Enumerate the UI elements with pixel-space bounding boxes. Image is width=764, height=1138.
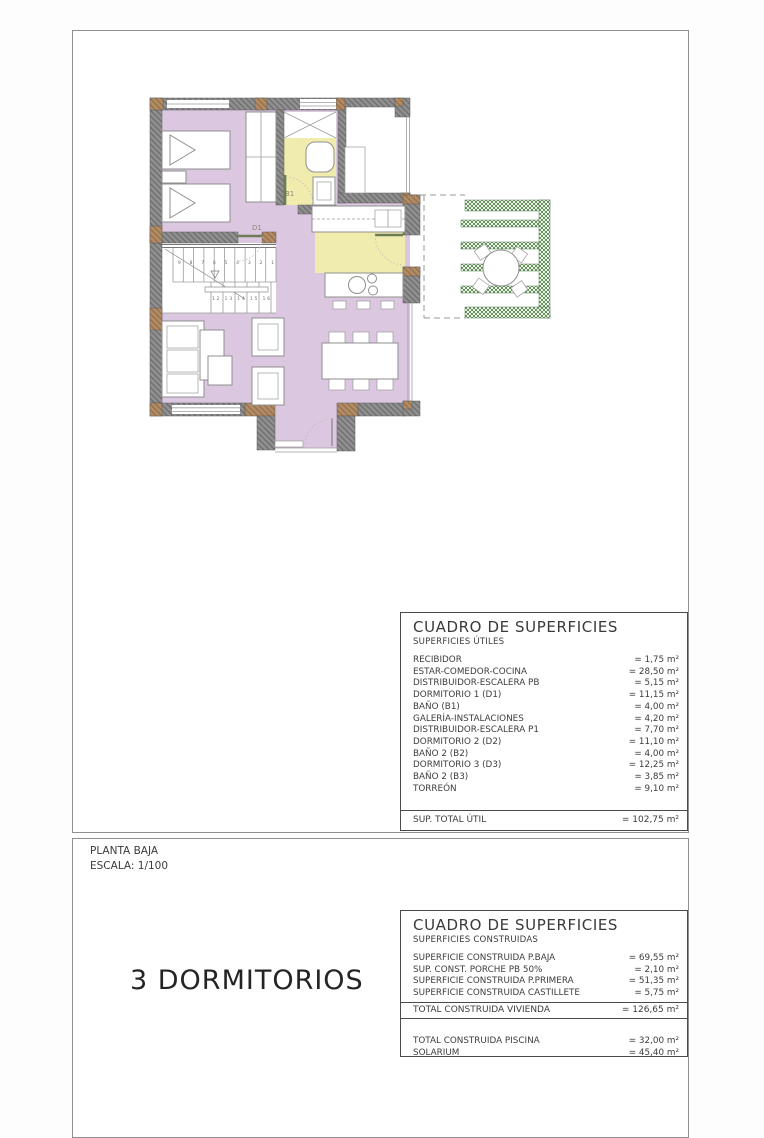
sheet-titleblock: PLANTA BAJA ESCALA: 1/100 3 DORMITORIOS … bbox=[72, 838, 689, 1138]
table-rows: SUPERFICIE CONSTRUIDA P.BAJA = 69,55 m² … bbox=[401, 953, 687, 1000]
table-row: TOTAL CONSTRUIDA PISCINA = 32,00 m² bbox=[401, 1036, 687, 1048]
row-value: = 11,15 m² bbox=[629, 690, 679, 702]
table-row: ESTAR-COMEDOR-COCINA = 28,50 m² bbox=[401, 667, 687, 679]
row-label: DISTRIBUIDOR-ESCALERA PB bbox=[413, 678, 539, 690]
table-row: RECIBIDOR = 1,75 m² bbox=[401, 655, 687, 667]
row-label: ESTAR-COMEDOR-COCINA bbox=[413, 667, 527, 679]
row-value: = 45,40 m² bbox=[629, 1048, 679, 1060]
row-value: = 4,00 m² bbox=[634, 702, 679, 714]
table-rows: RECIBIDOR = 1,75 m² ESTAR-COMEDOR-COCINA… bbox=[401, 655, 687, 795]
row-label: DORMITORIO 2 (D2) bbox=[413, 737, 501, 749]
row-value: = 4,00 m² bbox=[634, 749, 679, 761]
table-row: GALERÍA-INSTALACIONES = 4,20 m² bbox=[401, 714, 687, 726]
total-value: = 126,65 m² bbox=[622, 1005, 679, 1015]
row-value: = 5,75 m² bbox=[634, 988, 679, 1000]
row-label: GALERÍA-INSTALACIONES bbox=[413, 714, 524, 726]
table-row: DORMITORIO 2 (D2) = 11,10 m² bbox=[401, 737, 687, 749]
table-title: CUADRO DE SUPERFICIES bbox=[401, 613, 687, 636]
table-row: TORREÓN = 9,10 m² bbox=[401, 784, 687, 796]
water-heater bbox=[345, 147, 365, 193]
row-label: BAÑO (B1) bbox=[413, 702, 460, 714]
table-extra-rows: TOTAL CONSTRUIDA PISCINA = 32,00 m² SOLA… bbox=[401, 1036, 687, 1059]
galeria bbox=[345, 147, 365, 193]
row-value: = 4,20 m² bbox=[634, 714, 679, 726]
escala-label: ESCALA: 1/100 bbox=[90, 859, 168, 874]
table-row: BAÑO 2 (B3) = 3,85 m² bbox=[401, 772, 687, 784]
table-row: BAÑO (B1) = 4,00 m² bbox=[401, 702, 687, 714]
table-total-row: SUP. TOTAL ÚTIL = 102,75 m² bbox=[401, 810, 687, 830]
table-row: DISTRIBUIDOR-ESCALERA P1 = 7,70 m² bbox=[401, 725, 687, 737]
row-value: = 2,10 m² bbox=[634, 965, 679, 977]
row-value: = 69,55 m² bbox=[629, 953, 679, 965]
row-label: RECIBIDOR bbox=[413, 655, 462, 667]
terrace bbox=[410, 195, 550, 318]
table-row: SOLARIUM = 45,40 m² bbox=[401, 1048, 687, 1060]
row-label: DORMITORIO 3 (D3) bbox=[413, 760, 501, 772]
row-label: SOLARIUM bbox=[413, 1048, 459, 1060]
row-label: DORMITORIO 1 (D1) bbox=[413, 690, 501, 702]
table-subtitle: SUPERFICIES CONSTRUIDAS bbox=[401, 934, 687, 945]
table-row: DORMITORIO 1 (D1) = 11,15 m² bbox=[401, 690, 687, 702]
row-value: = 9,10 m² bbox=[634, 784, 679, 796]
row-label: SUP. CONST. PORCHE PB 50% bbox=[413, 965, 542, 977]
table-row: DISTRIBUIDOR-ESCALERA PB = 5,15 m² bbox=[401, 678, 687, 690]
row-value: = 12,25 m² bbox=[629, 760, 679, 772]
dining-table bbox=[322, 343, 398, 379]
table-row: SUPERFICIE CONSTRUIDA CASTILLETE = 5,75 … bbox=[401, 988, 687, 1000]
table-row: DORMITORIO 3 (D3) = 12,25 m² bbox=[401, 760, 687, 772]
row-value: = 3,85 m² bbox=[634, 772, 679, 784]
table-row: SUP. CONST. PORCHE PB 50% = 2,10 m² bbox=[401, 965, 687, 977]
row-label: BAÑO 2 (B2) bbox=[413, 749, 468, 761]
row-label: SUPERFICIE CONSTRUIDA P.PRIMERA bbox=[413, 976, 574, 988]
row-label: DISTRIBUIDOR-ESCALERA P1 bbox=[413, 725, 539, 737]
bathroom-label: B1 bbox=[285, 190, 294, 198]
table-superficies-construidas: CUADRO DE SUPERFICIES SUPERFICIES CONSTR… bbox=[400, 910, 688, 1057]
table-superficies-utiles: CUADRO DE SUPERFICIES SUPERFICIES ÚTILES… bbox=[400, 612, 688, 831]
row-value: = 7,70 m² bbox=[634, 725, 679, 737]
floor-plan-svg: 9 8 7 6 5 4 3 2 1 12 13 14 15 16 B1 bbox=[143, 85, 563, 460]
table-row: SUPERFICIE CONSTRUIDA P.PRIMERA = 51,35 … bbox=[401, 976, 687, 988]
row-label: SUPERFICIE CONSTRUIDA CASTILLETE bbox=[413, 988, 580, 1000]
planta-label: PLANTA BAJA bbox=[90, 844, 168, 859]
door-label: D1 bbox=[252, 224, 262, 232]
dormitorios-title: 3 DORMITORIOS bbox=[130, 965, 364, 996]
table-title: CUADRO DE SUPERFICIES bbox=[401, 911, 687, 934]
sheet-main: 9 8 7 6 5 4 3 2 1 12 13 14 15 16 B1 bbox=[72, 30, 689, 833]
table-row: SUPERFICIE CONSTRUIDA P.BAJA = 69,55 m² bbox=[401, 953, 687, 965]
row-label: BAÑO 2 (B3) bbox=[413, 772, 468, 784]
nightstand bbox=[162, 171, 186, 183]
row-value: = 28,50 m² bbox=[629, 667, 679, 679]
dining-area bbox=[322, 332, 398, 390]
row-value: = 5,15 m² bbox=[634, 678, 679, 690]
bathtub bbox=[306, 142, 334, 172]
floor-plan: 9 8 7 6 5 4 3 2 1 12 13 14 15 16 B1 bbox=[143, 85, 563, 460]
total-label: SUP. TOTAL ÚTIL bbox=[413, 815, 486, 825]
row-value: = 51,35 m² bbox=[629, 976, 679, 988]
table-row: BAÑO 2 (B2) = 4,00 m² bbox=[401, 749, 687, 761]
row-value: = 32,00 m² bbox=[629, 1036, 679, 1048]
row-label: SUPERFICIE CONSTRUIDA P.BAJA bbox=[413, 953, 555, 965]
total-label: TOTAL CONSTRUIDA VIVIENDA bbox=[413, 1005, 550, 1015]
total-value: = 102,75 m² bbox=[622, 815, 679, 825]
row-value: = 1,75 m² bbox=[634, 655, 679, 667]
row-value: = 11,10 m² bbox=[629, 737, 679, 749]
row-label: TORREÓN bbox=[413, 784, 457, 796]
table-total-row: TOTAL CONSTRUIDA VIVIENDA = 126,65 m² bbox=[401, 1002, 687, 1019]
table-subtitle: SUPERFICIES ÚTILES bbox=[401, 636, 687, 647]
kitchen-island bbox=[325, 273, 403, 297]
row-label: TOTAL CONSTRUIDA PISCINA bbox=[413, 1036, 540, 1048]
plan-caption: PLANTA BAJA ESCALA: 1/100 bbox=[90, 844, 168, 874]
